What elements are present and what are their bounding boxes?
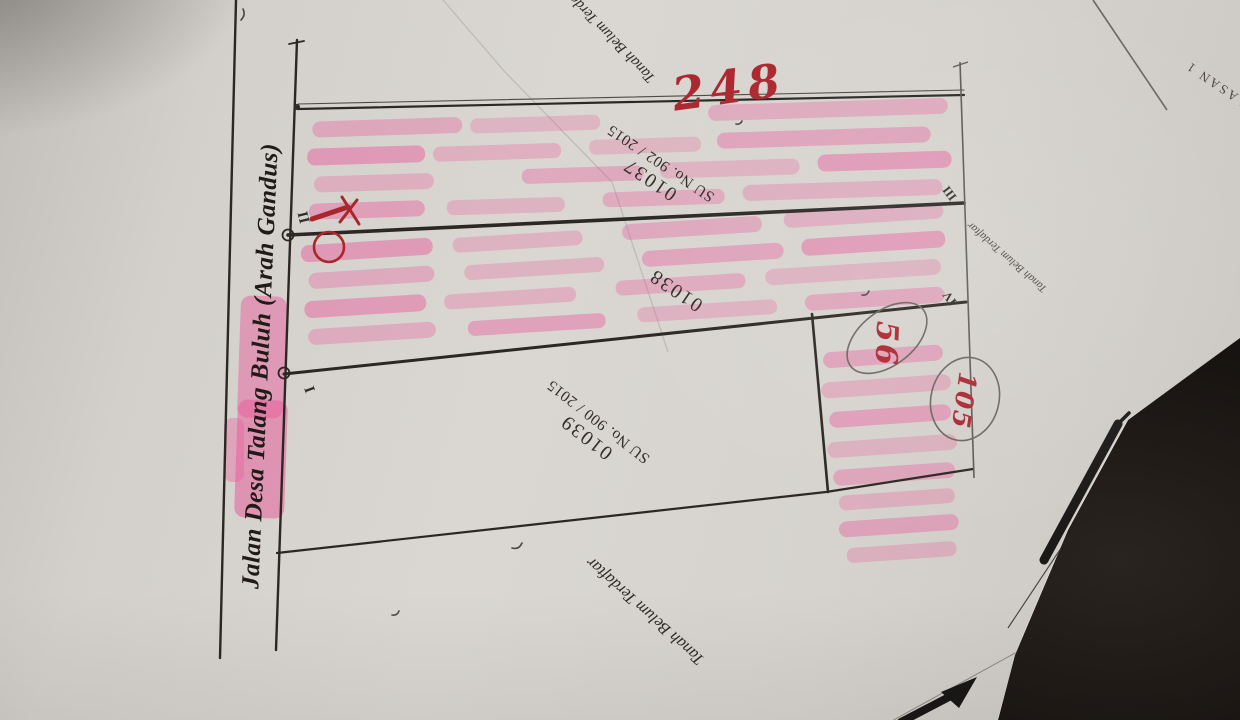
marker-stroke-hook <box>1118 413 1129 424</box>
marker-stroke-edge <box>1044 424 1118 560</box>
sketch-linework <box>0 0 1240 720</box>
paper-sheet: Jalan Desa Talang Buluh (Arah Gandus) 24… <box>0 0 1240 720</box>
pencil-line-top-right <box>1093 0 1167 110</box>
paper-edge-highlight <box>999 342 1238 719</box>
survey-sketch-photo: Jalan Desa Talang Buluh (Arah Gandus) 24… <box>0 0 1240 720</box>
corner-point-top <box>294 104 300 110</box>
red-area-56-label: 56 <box>868 321 905 368</box>
arrow-mark-bottom <box>941 677 977 708</box>
road-left-line <box>220 0 236 658</box>
highlight-small-parcel <box>819 344 965 565</box>
highlight-parcel-01038 <box>300 202 949 346</box>
arrow-tail-bottom <box>901 697 949 720</box>
pencil-line-edge <box>1008 441 1132 628</box>
paper-crease-bottom <box>890 616 1082 720</box>
small-parcel-left-line <box>812 314 828 492</box>
